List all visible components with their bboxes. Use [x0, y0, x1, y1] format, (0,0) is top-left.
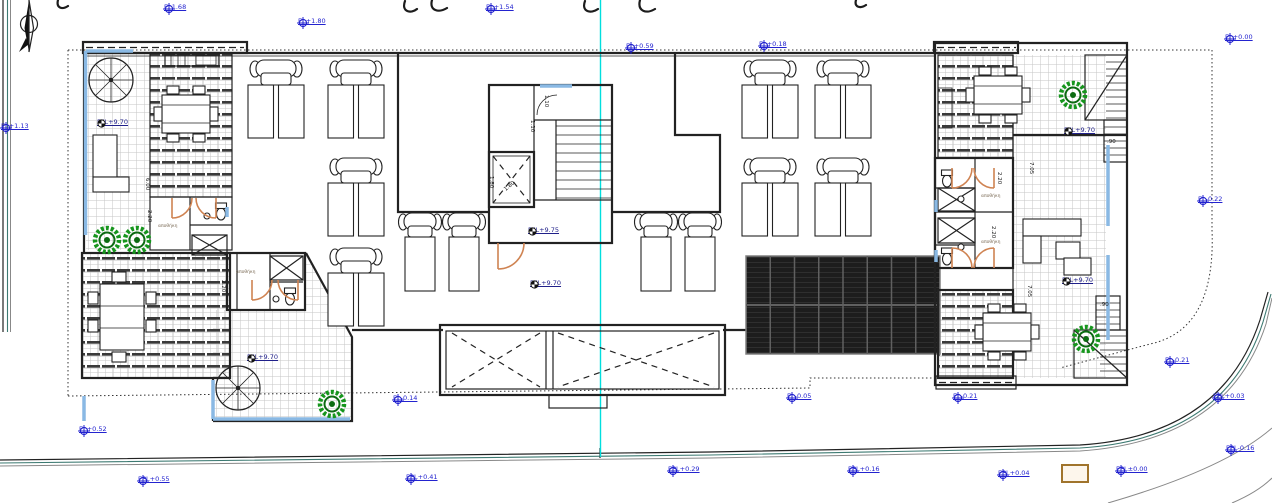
skylight-structure — [440, 325, 725, 408]
solar-panel-array — [746, 256, 940, 354]
north-arrow-icon — [19, 0, 38, 52]
stair-core — [489, 85, 612, 269]
floor-plan-canvas: EL1.68 EL+1.80 EL+1.54 EL+0.59 EL+0.18 E… — [0, 0, 1272, 503]
material-swatch — [1062, 465, 1088, 482]
spiral-stair-bottom — [216, 366, 260, 410]
cropped-text-fragments — [58, 0, 866, 12]
plan-linework — [0, 0, 1272, 503]
spiral-stair-top — [89, 58, 133, 102]
